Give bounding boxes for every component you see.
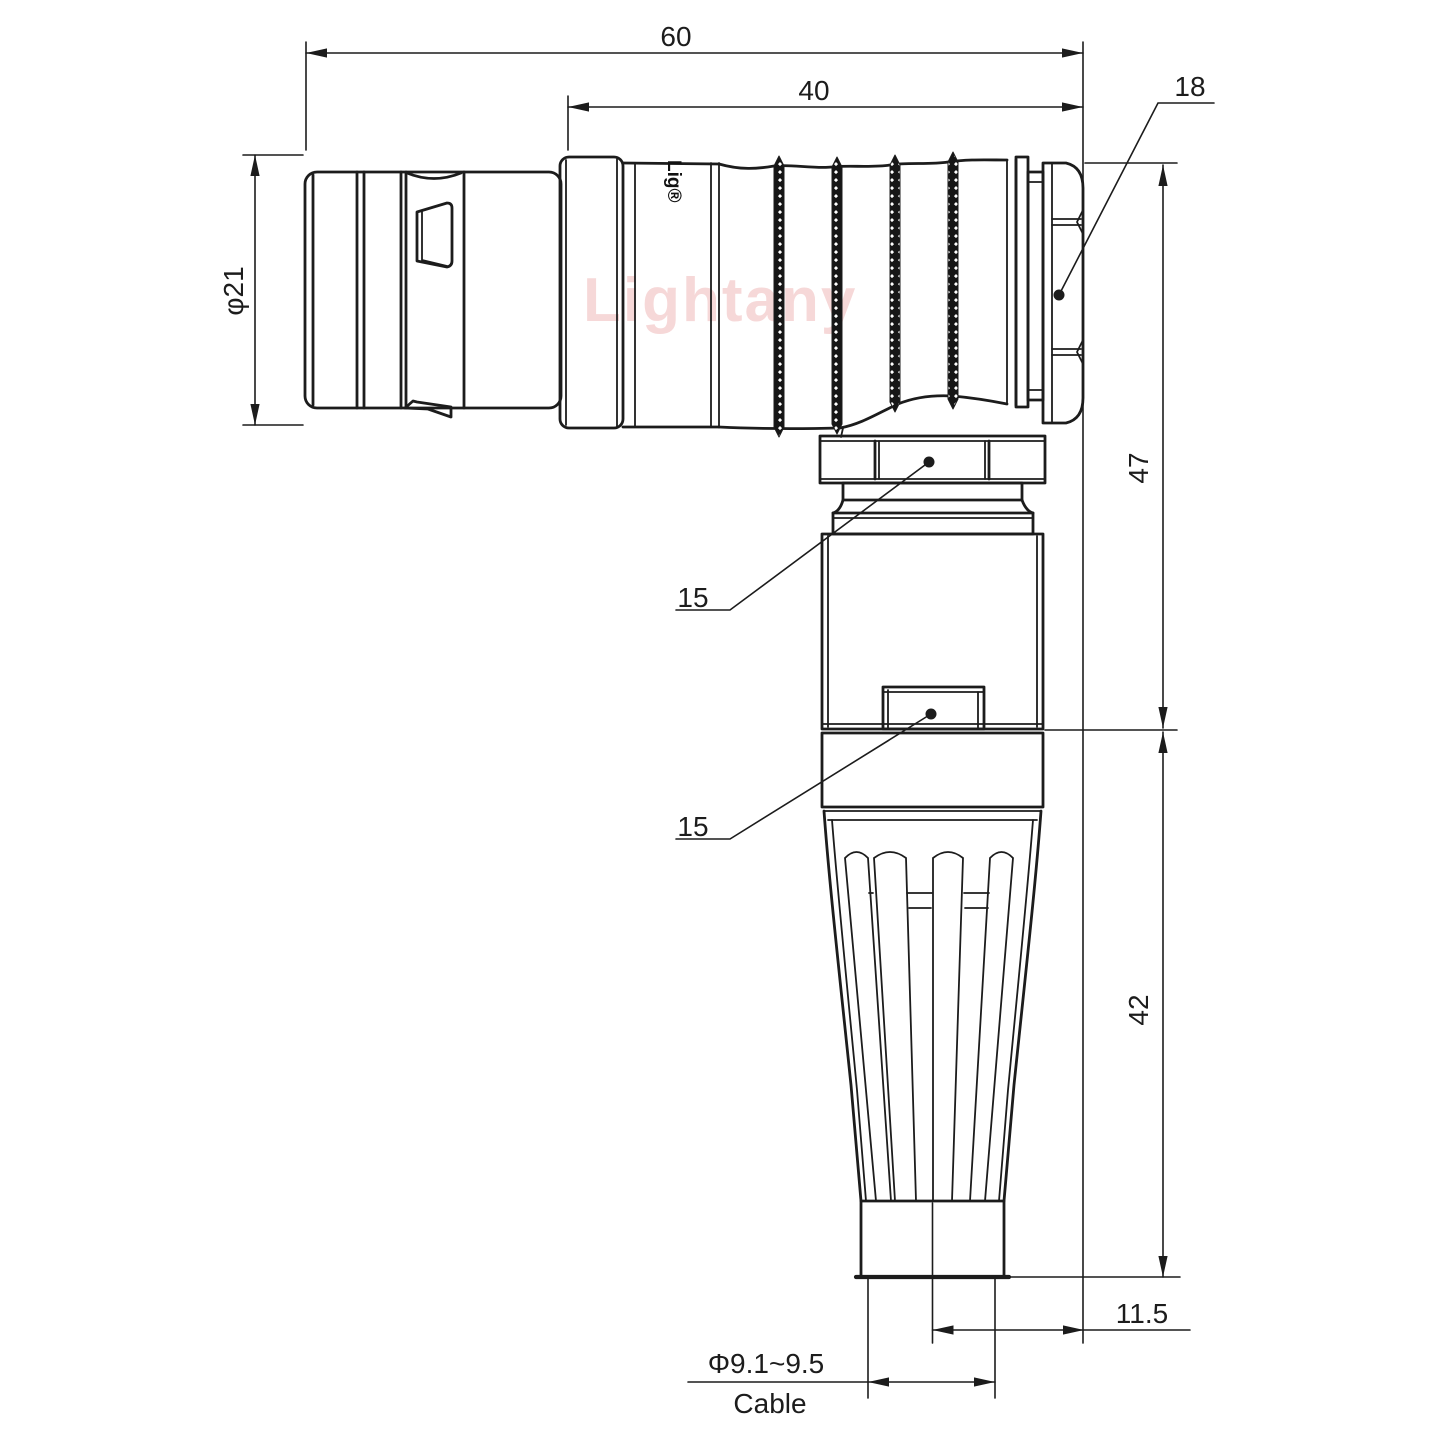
dimension-lines: [243, 42, 1214, 1398]
main-body: [822, 534, 1043, 729]
body-window: [883, 687, 984, 729]
dim-height-lower-label: 42: [1123, 994, 1154, 1025]
dim-upper-body-length-label: 40: [798, 75, 829, 106]
leader-dot-15-upper: [924, 457, 935, 468]
cable-caption: Cable: [733, 1388, 806, 1419]
knurl-band-4: [948, 152, 958, 409]
leader-dot-15-lower: [926, 709, 937, 720]
neck-rings: [833, 483, 1033, 534]
drawing-page: Lightany: [0, 0, 1440, 1440]
knurl-band-3: [890, 155, 900, 412]
vertical-assembly: [820, 436, 1045, 1277]
dimension-arrows: [250, 48, 1167, 1386]
dim-cable-diameter-label: Φ9.1~9.5: [708, 1348, 825, 1379]
flute-slots: [845, 852, 1013, 1201]
connector-technical-drawing: Lightany: [0, 0, 1440, 1440]
dim-nut-width-lower-label: 15: [677, 811, 708, 842]
plug-release-sleeve: [305, 172, 561, 417]
dim-plug-diameter-label: φ21: [218, 266, 249, 315]
dim-nut-width-upper-label: 15: [677, 582, 708, 613]
rear-rings: [1007, 157, 1043, 407]
leader-dot-18: [1054, 290, 1065, 301]
knurl-band-2: [832, 157, 842, 434]
elbow-curve: [719, 396, 1007, 429]
dim-height-upper-label: 47: [1123, 452, 1154, 483]
brand-vertical-text: Lig®: [663, 160, 684, 203]
dim-overall-length-label: 60: [660, 21, 691, 52]
dim-cable-offset-label: 11.5: [1116, 1298, 1168, 1329]
knurl-band-1: [774, 156, 784, 437]
dim-nut-across-flats-label: 18: [1174, 71, 1205, 102]
lower-band: [822, 733, 1043, 820]
strain-relief: [824, 811, 1041, 1201]
latch-tab: [407, 173, 461, 179]
